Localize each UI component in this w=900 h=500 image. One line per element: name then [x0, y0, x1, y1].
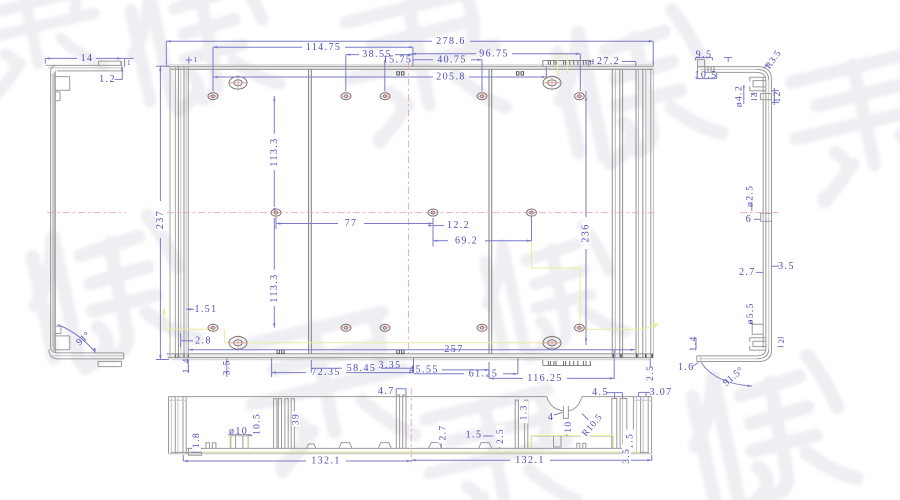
- svg-text:1.6: 1.6: [678, 362, 695, 373]
- svg-text:58.45: 58.45: [347, 363, 377, 374]
- svg-text:2.7: 2.7: [739, 267, 756, 278]
- svg-text:257: 257: [444, 344, 463, 355]
- svg-text:1.8: 1.8: [192, 432, 202, 448]
- svg-text:132.1: 132.1: [515, 455, 545, 466]
- svg-text:4.5: 4.5: [592, 387, 609, 398]
- svg-text:ø2.5: ø2.5: [745, 185, 755, 207]
- svg-text:2.8: 2.8: [195, 335, 212, 346]
- svg-text:15.75: 15.75: [383, 54, 413, 65]
- svg-text:6: 6: [746, 214, 751, 225]
- svg-text:2.5: 2.5: [646, 365, 656, 381]
- svg-text:114.75: 114.75: [306, 42, 342, 53]
- svg-text:2.7: 2.7: [438, 424, 448, 440]
- svg-text:1.51: 1.51: [194, 304, 217, 315]
- svg-text:10: 10: [564, 420, 574, 432]
- svg-text:2: 2: [776, 339, 786, 343]
- svg-text:ø5.5: ø5.5: [746, 302, 756, 324]
- svg-text:1.4: 1.4: [182, 357, 192, 373]
- svg-text:1.3: 1.3: [519, 404, 529, 420]
- svg-text:72.35: 72.35: [311, 367, 341, 378]
- svg-text:10.5: 10.5: [694, 70, 717, 81]
- svg-text:1: 1: [127, 59, 131, 67]
- svg-text:1.5: 1.5: [466, 430, 483, 441]
- svg-text:113.3: 113.3: [269, 137, 280, 166]
- svg-text:69.2: 69.2: [455, 235, 478, 246]
- svg-text:3.07: 3.07: [649, 387, 672, 398]
- svg-text:61.25: 61.25: [469, 368, 499, 379]
- svg-text:132.1: 132.1: [311, 456, 341, 467]
- svg-text:4: 4: [548, 412, 553, 423]
- svg-text:3.5: 3.5: [778, 261, 795, 272]
- svg-text:10.5: 10.5: [252, 413, 262, 435]
- svg-text:ø10: ø10: [229, 426, 248, 437]
- svg-text:14: 14: [81, 53, 94, 64]
- svg-text:39: 39: [291, 413, 301, 425]
- svg-text:9.5: 9.5: [696, 49, 713, 60]
- svg-text:2: 2: [749, 93, 759, 97]
- svg-text:205.8: 205.8: [436, 72, 466, 83]
- svg-text:116.25: 116.25: [527, 373, 563, 384]
- svg-text:4.7: 4.7: [378, 386, 395, 397]
- svg-text:3.35: 3.35: [378, 360, 401, 371]
- svg-text:113.3: 113.3: [269, 273, 280, 302]
- svg-text:236: 236: [581, 223, 592, 242]
- svg-text:1: 1: [194, 56, 198, 64]
- svg-text:1.4: 1.4: [689, 335, 699, 351]
- svg-text:2.5: 2.5: [496, 428, 506, 444]
- svg-text:12.2: 12.2: [447, 220, 470, 231]
- svg-text:27.2: 27.2: [597, 56, 620, 67]
- svg-text:40.75: 40.75: [437, 54, 467, 65]
- svg-text:12: 12: [773, 90, 783, 102]
- svg-text:96.75: 96.75: [479, 48, 509, 59]
- svg-text:1: 1: [591, 58, 595, 66]
- svg-text:1.2: 1.2: [99, 74, 116, 85]
- svg-text:278.6: 278.6: [436, 36, 466, 47]
- svg-text:3.5: 3.5: [622, 448, 632, 464]
- svg-text:ø4.2: ø4.2: [734, 85, 744, 107]
- svg-text:77: 77: [345, 218, 358, 229]
- svg-text:237: 237: [155, 210, 166, 229]
- svg-text:3.5: 3.5: [222, 359, 232, 375]
